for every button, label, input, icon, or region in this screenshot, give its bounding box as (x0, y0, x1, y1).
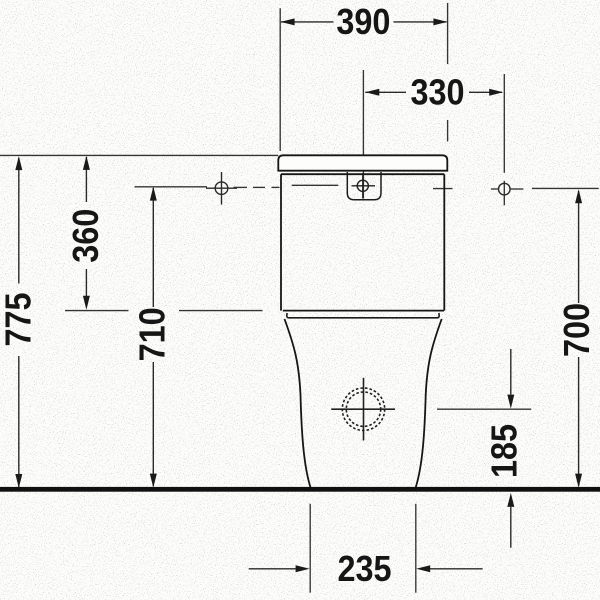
svg-text:390: 390 (336, 3, 390, 43)
svg-text:330: 330 (410, 73, 464, 113)
svg-text:235: 235 (337, 550, 391, 590)
svg-text:185: 185 (485, 424, 525, 478)
svg-text:775: 775 (0, 292, 39, 346)
svg-text:710: 710 (133, 307, 173, 361)
svg-text:700: 700 (558, 303, 598, 357)
svg-text:360: 360 (67, 209, 107, 263)
